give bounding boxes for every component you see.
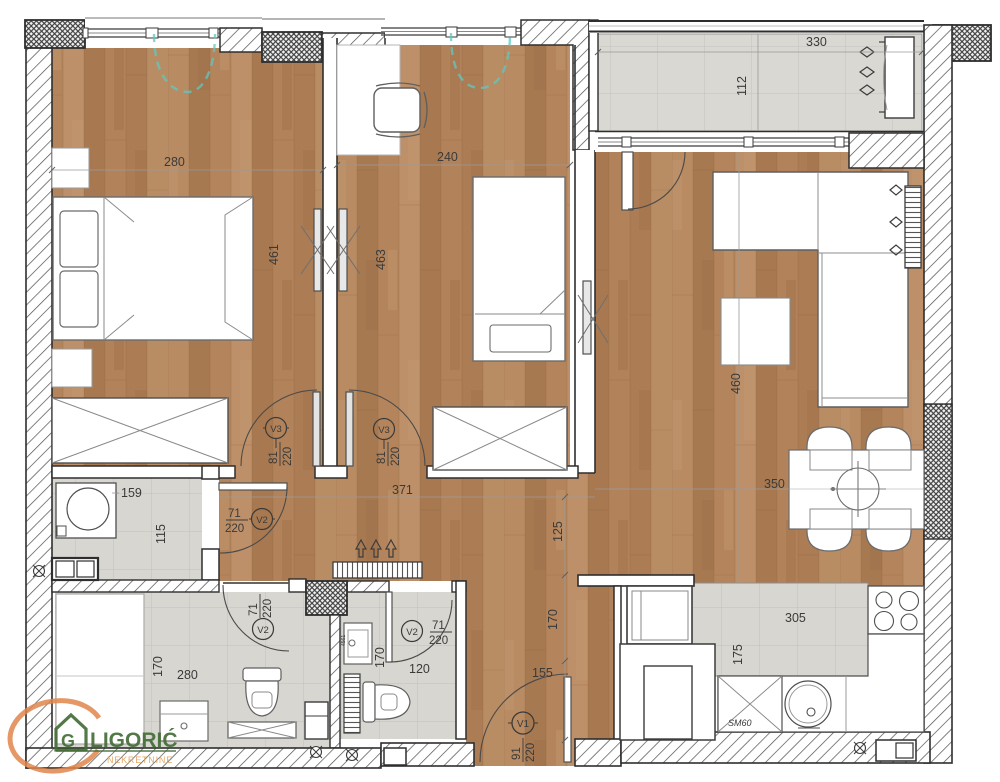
svg-text:LIGORIĆ: LIGORIĆ: [90, 728, 178, 752]
svg-text:170: 170: [546, 609, 560, 630]
svg-text:220: 220: [390, 447, 402, 466]
svg-text:280: 280: [164, 155, 185, 169]
svg-text:120: 120: [409, 662, 430, 676]
svg-text:91: 91: [511, 747, 523, 760]
svg-text:371: 371: [392, 483, 413, 497]
svg-text:V3: V3: [270, 424, 282, 435]
svg-text:71: 71: [228, 508, 241, 520]
svg-text:350: 350: [764, 477, 785, 491]
svg-text:81: 81: [376, 451, 388, 464]
svg-text:V2: V2: [406, 627, 418, 638]
svg-text:4561: 4561: [341, 635, 347, 646]
svg-text:71: 71: [432, 620, 445, 632]
svg-text:112: 112: [735, 76, 749, 96]
svg-text:463: 463: [374, 249, 388, 270]
svg-text:460: 460: [729, 373, 743, 394]
svg-text:NEKRETNINE: NEKRETNINE: [107, 755, 173, 765]
svg-text:155: 155: [532, 666, 553, 680]
svg-text:220: 220: [282, 447, 294, 466]
svg-text:461: 461: [267, 244, 281, 265]
svg-text:175: 175: [731, 644, 745, 665]
svg-text:71: 71: [248, 603, 260, 616]
svg-text:V2: V2: [256, 515, 268, 526]
svg-text:115: 115: [154, 524, 168, 544]
svg-text:170: 170: [373, 647, 387, 668]
svg-text:G: G: [61, 731, 75, 751]
svg-text:125: 125: [551, 521, 565, 542]
svg-text:170: 170: [151, 656, 165, 677]
svg-text:240: 240: [437, 150, 458, 164]
svg-text:159: 159: [121, 486, 142, 500]
svg-text:220: 220: [525, 743, 537, 762]
svg-text:SM60: SM60: [728, 718, 752, 728]
svg-text:280: 280: [177, 668, 198, 682]
svg-text:305: 305: [785, 611, 806, 625]
svg-text:220: 220: [225, 523, 244, 535]
svg-text:220: 220: [429, 635, 448, 647]
svg-text:V3: V3: [378, 425, 390, 436]
svg-text:V1: V1: [517, 719, 530, 730]
svg-text:330: 330: [806, 35, 827, 49]
svg-text:220: 220: [262, 599, 274, 618]
svg-text:V2: V2: [257, 625, 269, 636]
svg-text:81: 81: [268, 451, 280, 464]
